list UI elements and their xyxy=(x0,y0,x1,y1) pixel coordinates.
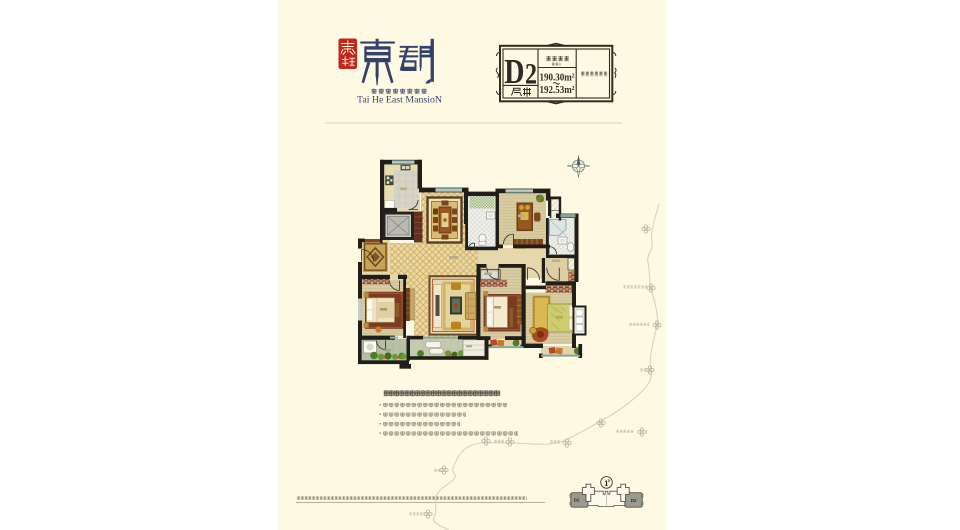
svg-text:D2: D2 xyxy=(631,498,637,503)
svg-text:2: 2 xyxy=(525,57,537,90)
svg-text:D2: D2 xyxy=(574,498,580,503)
svg-text:190.30m²: 190.30m² xyxy=(540,73,575,84)
svg-text:D: D xyxy=(504,52,524,91)
svg-text:Tai He East MansioN: Tai He East MansioN xyxy=(357,94,442,105)
svg-text:192.53m²: 192.53m² xyxy=(540,85,575,96)
